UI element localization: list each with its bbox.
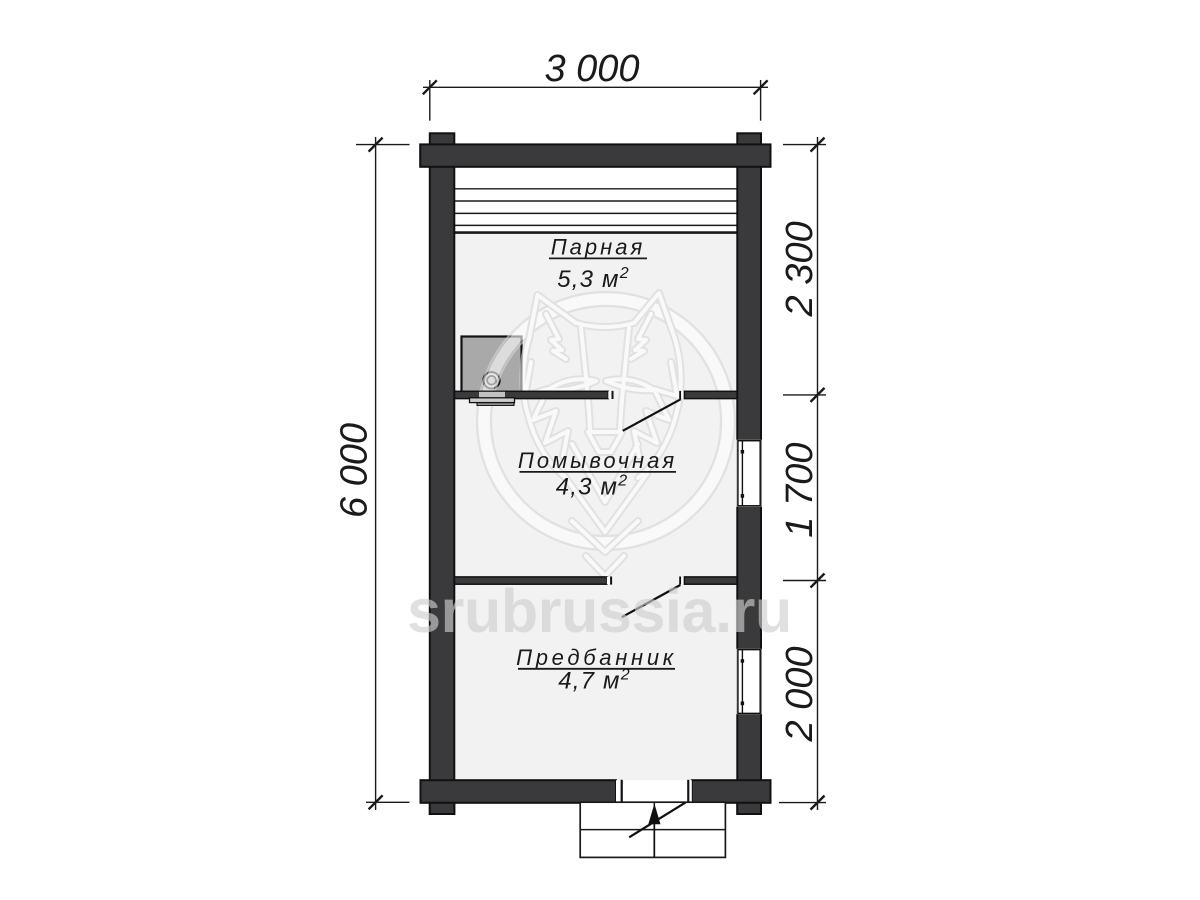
- svg-text:4,7 м2: 4,7 м2: [558, 667, 631, 695]
- svg-text:Помывочная: Помывочная: [518, 448, 677, 473]
- svg-text:5,3 м2: 5,3 м2: [557, 265, 630, 293]
- svg-text:3 000: 3 000: [544, 48, 639, 90]
- svg-text:2 000: 2 000: [779, 646, 821, 742]
- svg-text:6 000: 6 000: [334, 423, 376, 518]
- svg-text:4,3 м2: 4,3 м2: [556, 473, 629, 501]
- svg-text:2 300: 2 300: [779, 221, 821, 317]
- svg-text:srubrussia.ru: srubrussia.ru: [407, 577, 792, 645]
- svg-text:Парная: Парная: [551, 235, 646, 260]
- svg-text:1 700: 1 700: [779, 443, 821, 538]
- svg-text:Предбанник: Предбанник: [516, 645, 677, 670]
